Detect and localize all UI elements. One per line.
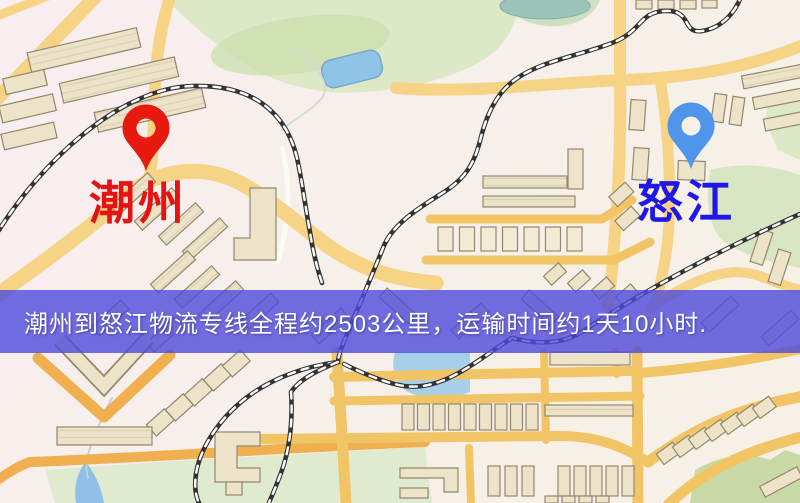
route-info-banner: 潮州到怒江物流专线全程约2503公里，运输时间约1天10小时. xyxy=(0,290,800,353)
map-canvas: 潮州 怒江 xyxy=(0,0,800,503)
route-info-text: 潮州到怒江物流专线全程约2503公里，运输时间约1天10小时. xyxy=(24,304,707,339)
road xyxy=(544,352,546,440)
road xyxy=(334,371,630,377)
origin-label: 潮州 xyxy=(89,177,187,229)
road xyxy=(469,448,471,503)
map-screenshot: 潮州 怒江 潮州到怒江物流专线全程约2503公里，运输时间约1天10小时. xyxy=(0,0,800,503)
destination-label: 怒江 xyxy=(637,176,735,228)
road xyxy=(334,396,640,401)
